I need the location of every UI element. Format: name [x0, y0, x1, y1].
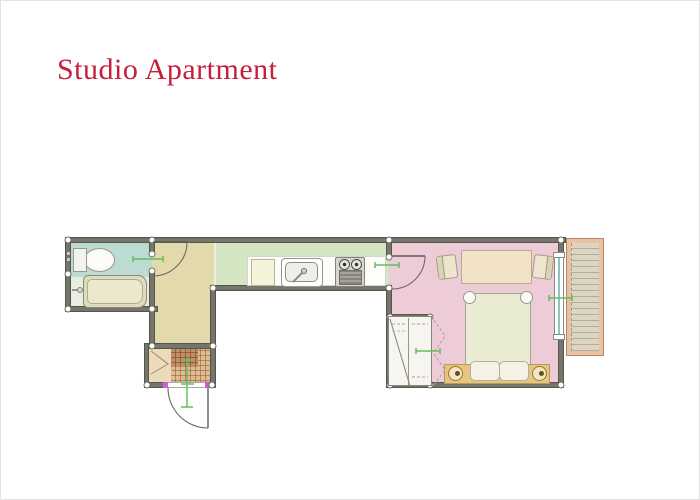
entrance-threshold	[167, 382, 209, 388]
dining-table-icon	[461, 250, 532, 284]
wall-fitting-mark	[67, 258, 70, 261]
burner-icon	[339, 259, 350, 270]
wardrobe-icon	[388, 316, 432, 386]
door-hinge-marker	[163, 382, 168, 388]
wall-fitting-mark	[67, 252, 70, 255]
wall-node	[386, 285, 393, 292]
window-glass	[558, 258, 560, 334]
wall-node	[209, 382, 216, 389]
burner-icon	[351, 259, 362, 270]
wall-top	[65, 237, 566, 243]
window-end-cap	[553, 334, 565, 340]
wall-node	[149, 343, 156, 350]
entry-mat-dark-section	[171, 346, 198, 367]
balcony-decking	[571, 243, 599, 351]
entry-closet	[149, 346, 171, 385]
lamp-icon	[448, 366, 463, 381]
toilet-tank	[73, 248, 87, 272]
wall-node	[65, 271, 72, 278]
page-title: Studio Apartment	[57, 53, 278, 87]
pillow-icon	[470, 361, 500, 381]
floor-transition-line	[214, 242, 216, 286]
lamp-icon	[532, 366, 547, 381]
entrance-door-arc-icon	[168, 388, 208, 428]
wall-node	[558, 382, 565, 389]
pillow-icon	[499, 361, 529, 381]
window-end-cap	[553, 252, 565, 258]
room-hallway	[152, 240, 216, 346]
wall-bedroom-right-lower	[558, 332, 564, 388]
wall-node	[65, 237, 72, 244]
wall-node	[149, 251, 156, 258]
wall-node	[144, 382, 151, 389]
stove-grill	[339, 270, 362, 285]
wall-node	[386, 237, 393, 244]
sink-basin	[285, 262, 318, 282]
wall-node	[65, 306, 72, 313]
cabinet-icon	[251, 259, 275, 286]
bathtub-icon	[83, 275, 147, 308]
bed-post-icon	[463, 291, 476, 304]
wall-node	[386, 254, 393, 261]
wall-node	[210, 343, 217, 350]
sink-icon	[281, 258, 323, 287]
wall-node	[149, 306, 156, 313]
chair-backrest	[437, 256, 446, 279]
chair-icon	[436, 254, 459, 280]
lamp-shade	[455, 371, 460, 376]
wall-node	[149, 237, 156, 244]
wall-hall-right	[210, 285, 216, 388]
floor-plan-page: Studio Apartment	[0, 0, 700, 500]
wall-node	[149, 268, 156, 275]
wall-node	[210, 285, 217, 292]
chair-icon	[532, 254, 555, 280]
lamp-shade	[539, 371, 544, 376]
window-icon	[554, 254, 564, 338]
bed-post-icon	[520, 291, 533, 304]
balcony	[566, 238, 604, 356]
stove-icon	[335, 257, 365, 287]
wall-node	[558, 237, 565, 244]
chair-backrest	[545, 256, 554, 279]
toilet-icon	[84, 248, 115, 272]
bathtub-basin	[87, 279, 143, 304]
